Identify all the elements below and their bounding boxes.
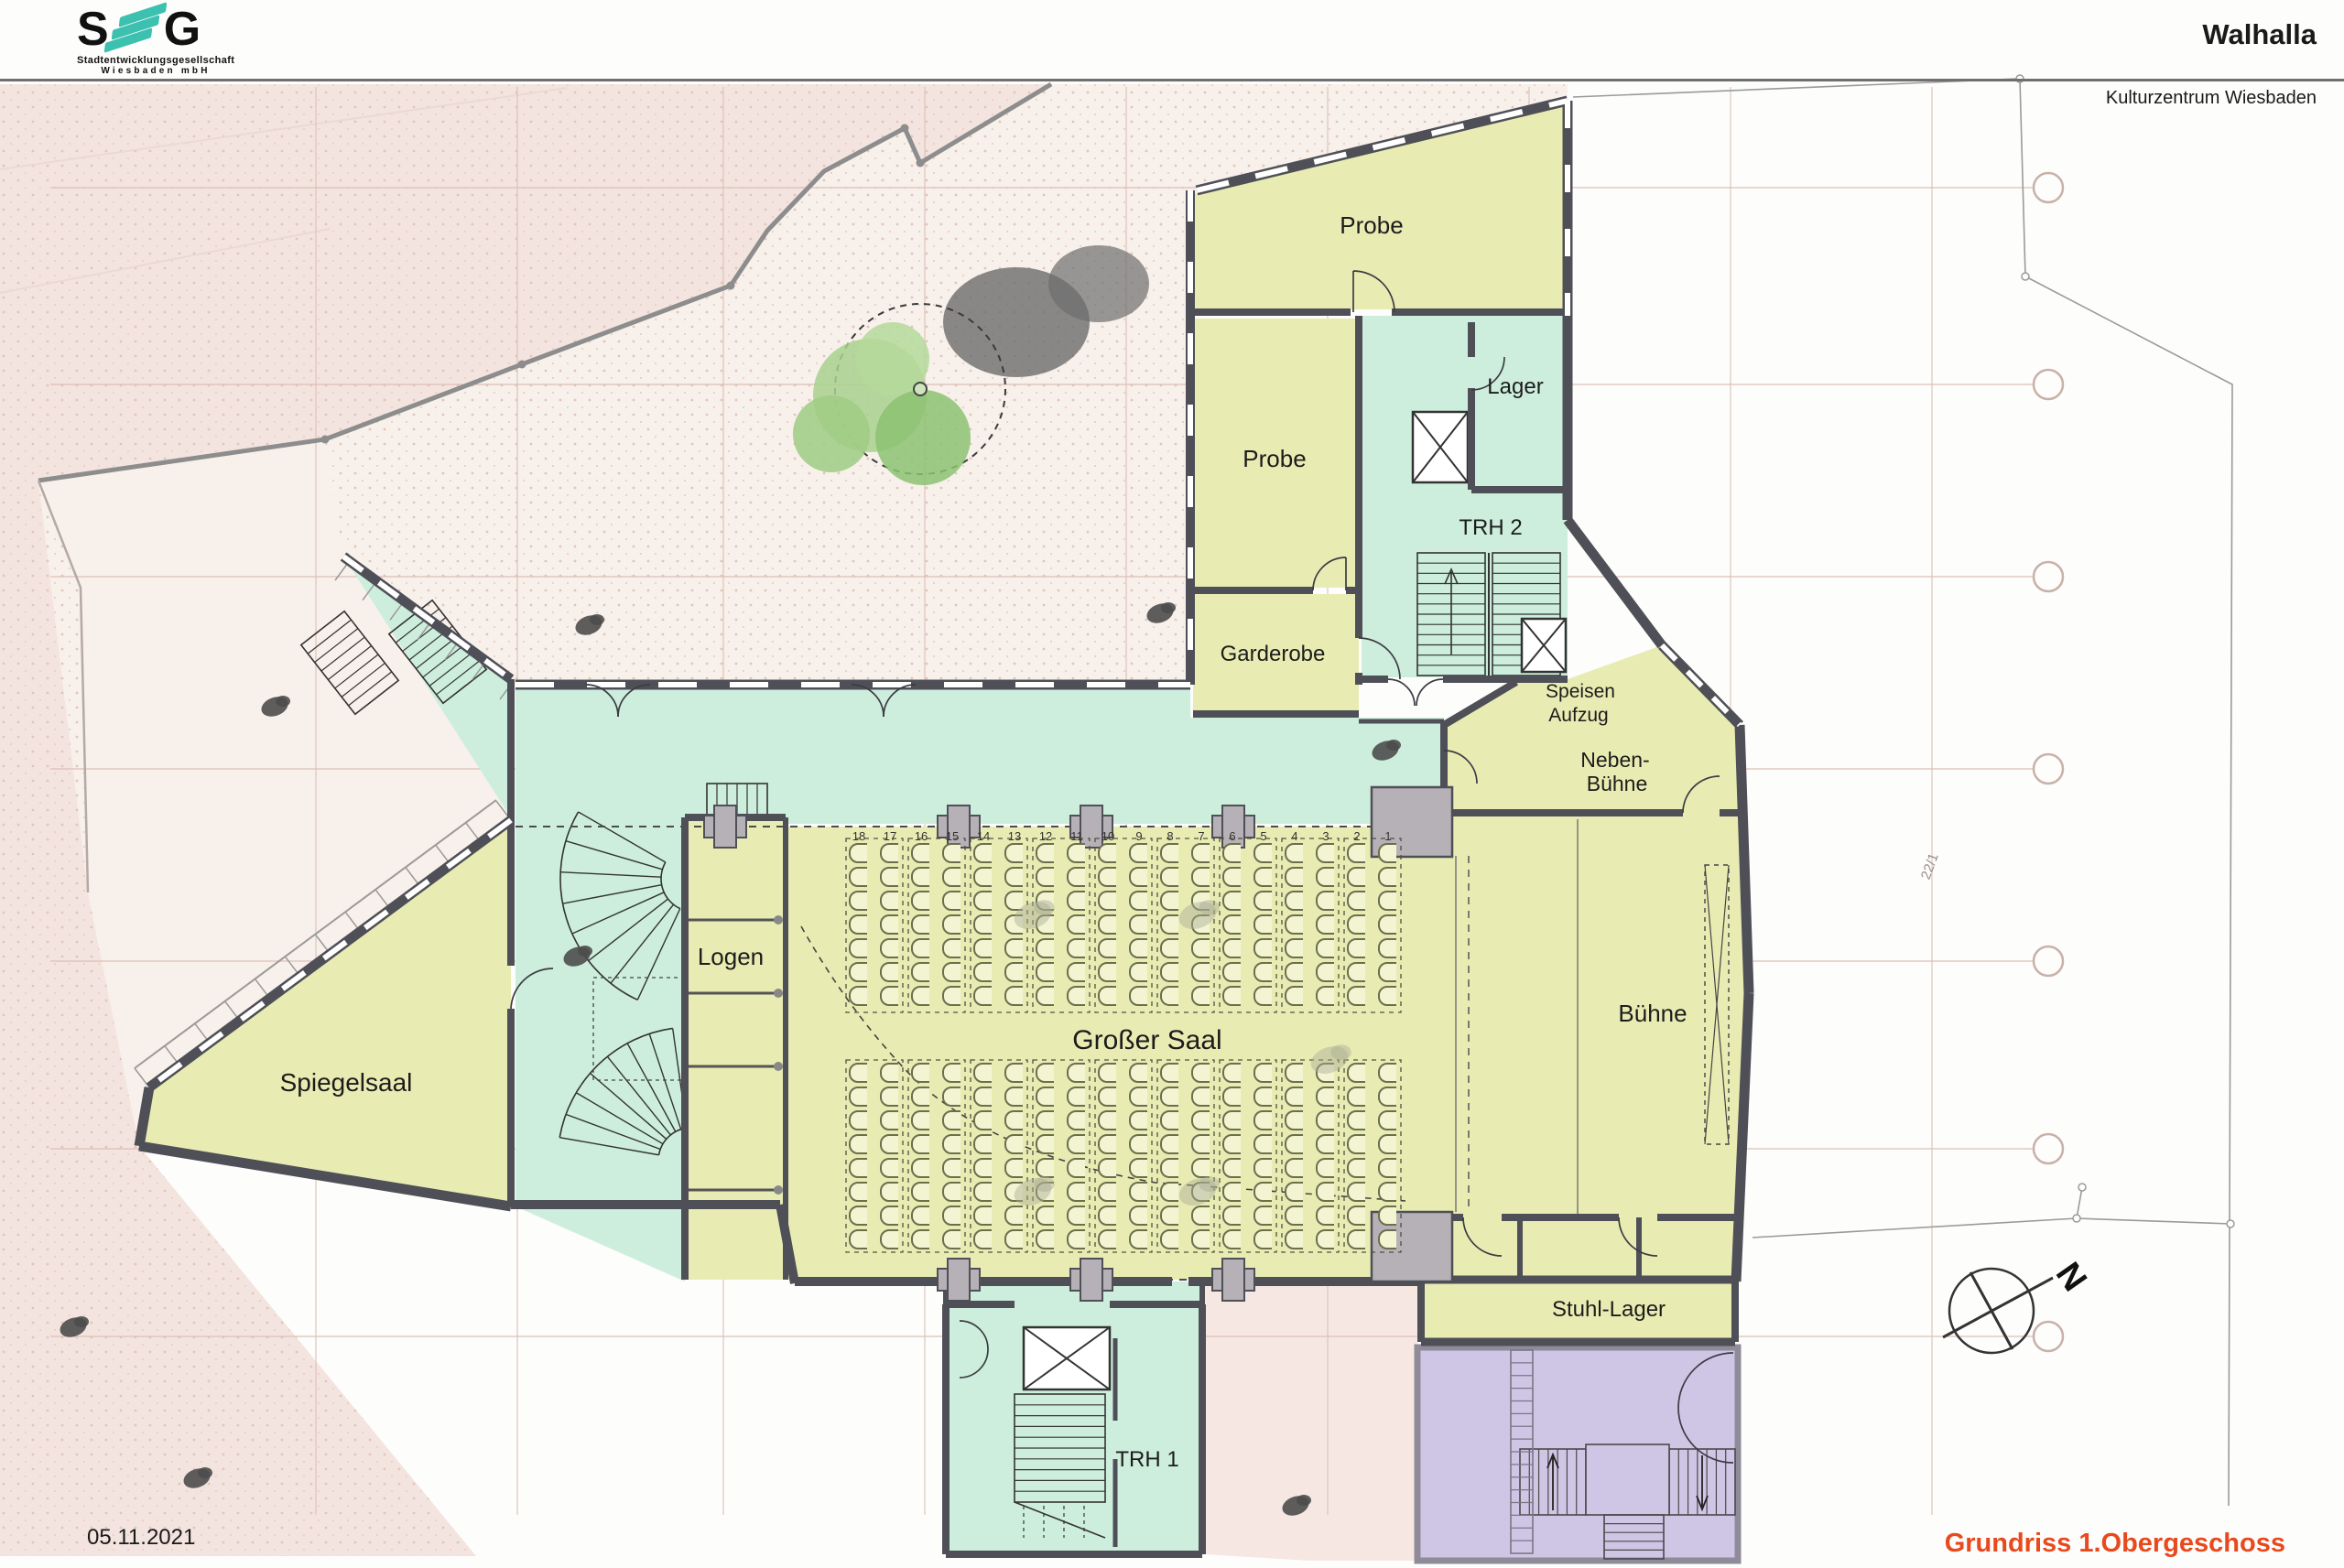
svg-text:4: 4 <box>1291 829 1297 843</box>
seg-logo-letters: S G <box>77 5 297 53</box>
svg-text:18: 18 <box>852 829 865 843</box>
label-room-trh-2: TRH 2 <box>1459 515 1522 540</box>
label-room-speisen-aufzug-line2: Aufzug <box>1548 705 1608 726</box>
room-foyer-west <box>515 824 685 1281</box>
svg-text:14: 14 <box>977 829 990 843</box>
svg-text:3: 3 <box>1322 829 1329 843</box>
svg-text:9: 9 <box>1135 829 1142 843</box>
north-label: N <box>2048 1256 2094 1299</box>
room-logen <box>685 817 786 1280</box>
drawing-date: 05.11.2021 <box>87 1525 195 1551</box>
svg-text:8: 8 <box>1167 829 1173 843</box>
logo-company-name: Stadtentwicklungsgesellschaft <box>77 55 297 66</box>
label-room-neben-buehne-line2: Bühne <box>1587 772 1648 795</box>
label-room-stuhl-lager: Stuhl-Lager <box>1552 1297 1666 1322</box>
label-room-buehne: Bühne <box>1618 1000 1687 1027</box>
svg-text:1: 1 <box>1384 829 1391 843</box>
drawing-sheet: S G Stadtentwicklungsgesellschaft Wiesba… <box>0 0 2344 1568</box>
label-room-lager: Lager <box>1487 374 1543 399</box>
parcel-number: 22/1 <box>1918 851 1942 881</box>
svg-text:7: 7 <box>1198 829 1204 843</box>
logo-brush-strokes-icon <box>103 7 169 51</box>
project-subtitle: Kulturzentrum Wiesbaden <box>2106 88 2317 109</box>
label-room-probe-2: Probe <box>1243 445 1306 472</box>
label-room-neben-buehne-line1: Neben- <box>1580 748 1649 772</box>
project-title: Walhalla <box>2202 18 2317 51</box>
north-arrow: N <box>1943 1256 2094 1353</box>
floor-plan-svg: 181716151413121110987654321ProbeProbeLag… <box>0 0 2344 1568</box>
svg-text:5: 5 <box>1260 829 1266 843</box>
svg-text:12: 12 <box>1039 829 1052 843</box>
site-pocket-southeast <box>1205 1283 1417 1561</box>
header-divider <box>0 79 2344 81</box>
svg-text:17: 17 <box>884 829 896 843</box>
room-buehne <box>1372 813 1749 1217</box>
svg-text:13: 13 <box>1008 829 1021 843</box>
logo-company-city: Wiesbaden mbH <box>77 66 234 76</box>
svg-text:16: 16 <box>915 829 928 843</box>
svg-text:15: 15 <box>946 829 959 843</box>
label-room-spiegelsaal: Spiegelsaal <box>280 1068 413 1097</box>
label-room-garderobe: Garderobe <box>1221 642 1326 666</box>
logo-letter-g: G <box>164 5 201 53</box>
drawing-title: Grundriss 1.Obergeschoss <box>1945 1529 2285 1559</box>
label-room-grosser-saal: Großer Saal <box>1072 1025 1221 1055</box>
room-neighbor-building <box>1417 1347 1738 1561</box>
label-room-probe-1: Probe <box>1340 211 1403 239</box>
room-backstage <box>1421 1217 1737 1280</box>
svg-text:11: 11 <box>1070 829 1083 843</box>
label-room-speisen-aufzug-line1: Speisen <box>1546 681 1615 702</box>
svg-text:10: 10 <box>1101 829 1114 843</box>
label-room-trh-1: TRH 1 <box>1115 1447 1178 1472</box>
svg-text:6: 6 <box>1229 829 1235 843</box>
label-room-logen: Logen <box>698 943 764 970</box>
svg-text:2: 2 <box>1353 829 1360 843</box>
seg-logo: S G Stadtentwicklungsgesellschaft Wiesba… <box>77 5 297 76</box>
